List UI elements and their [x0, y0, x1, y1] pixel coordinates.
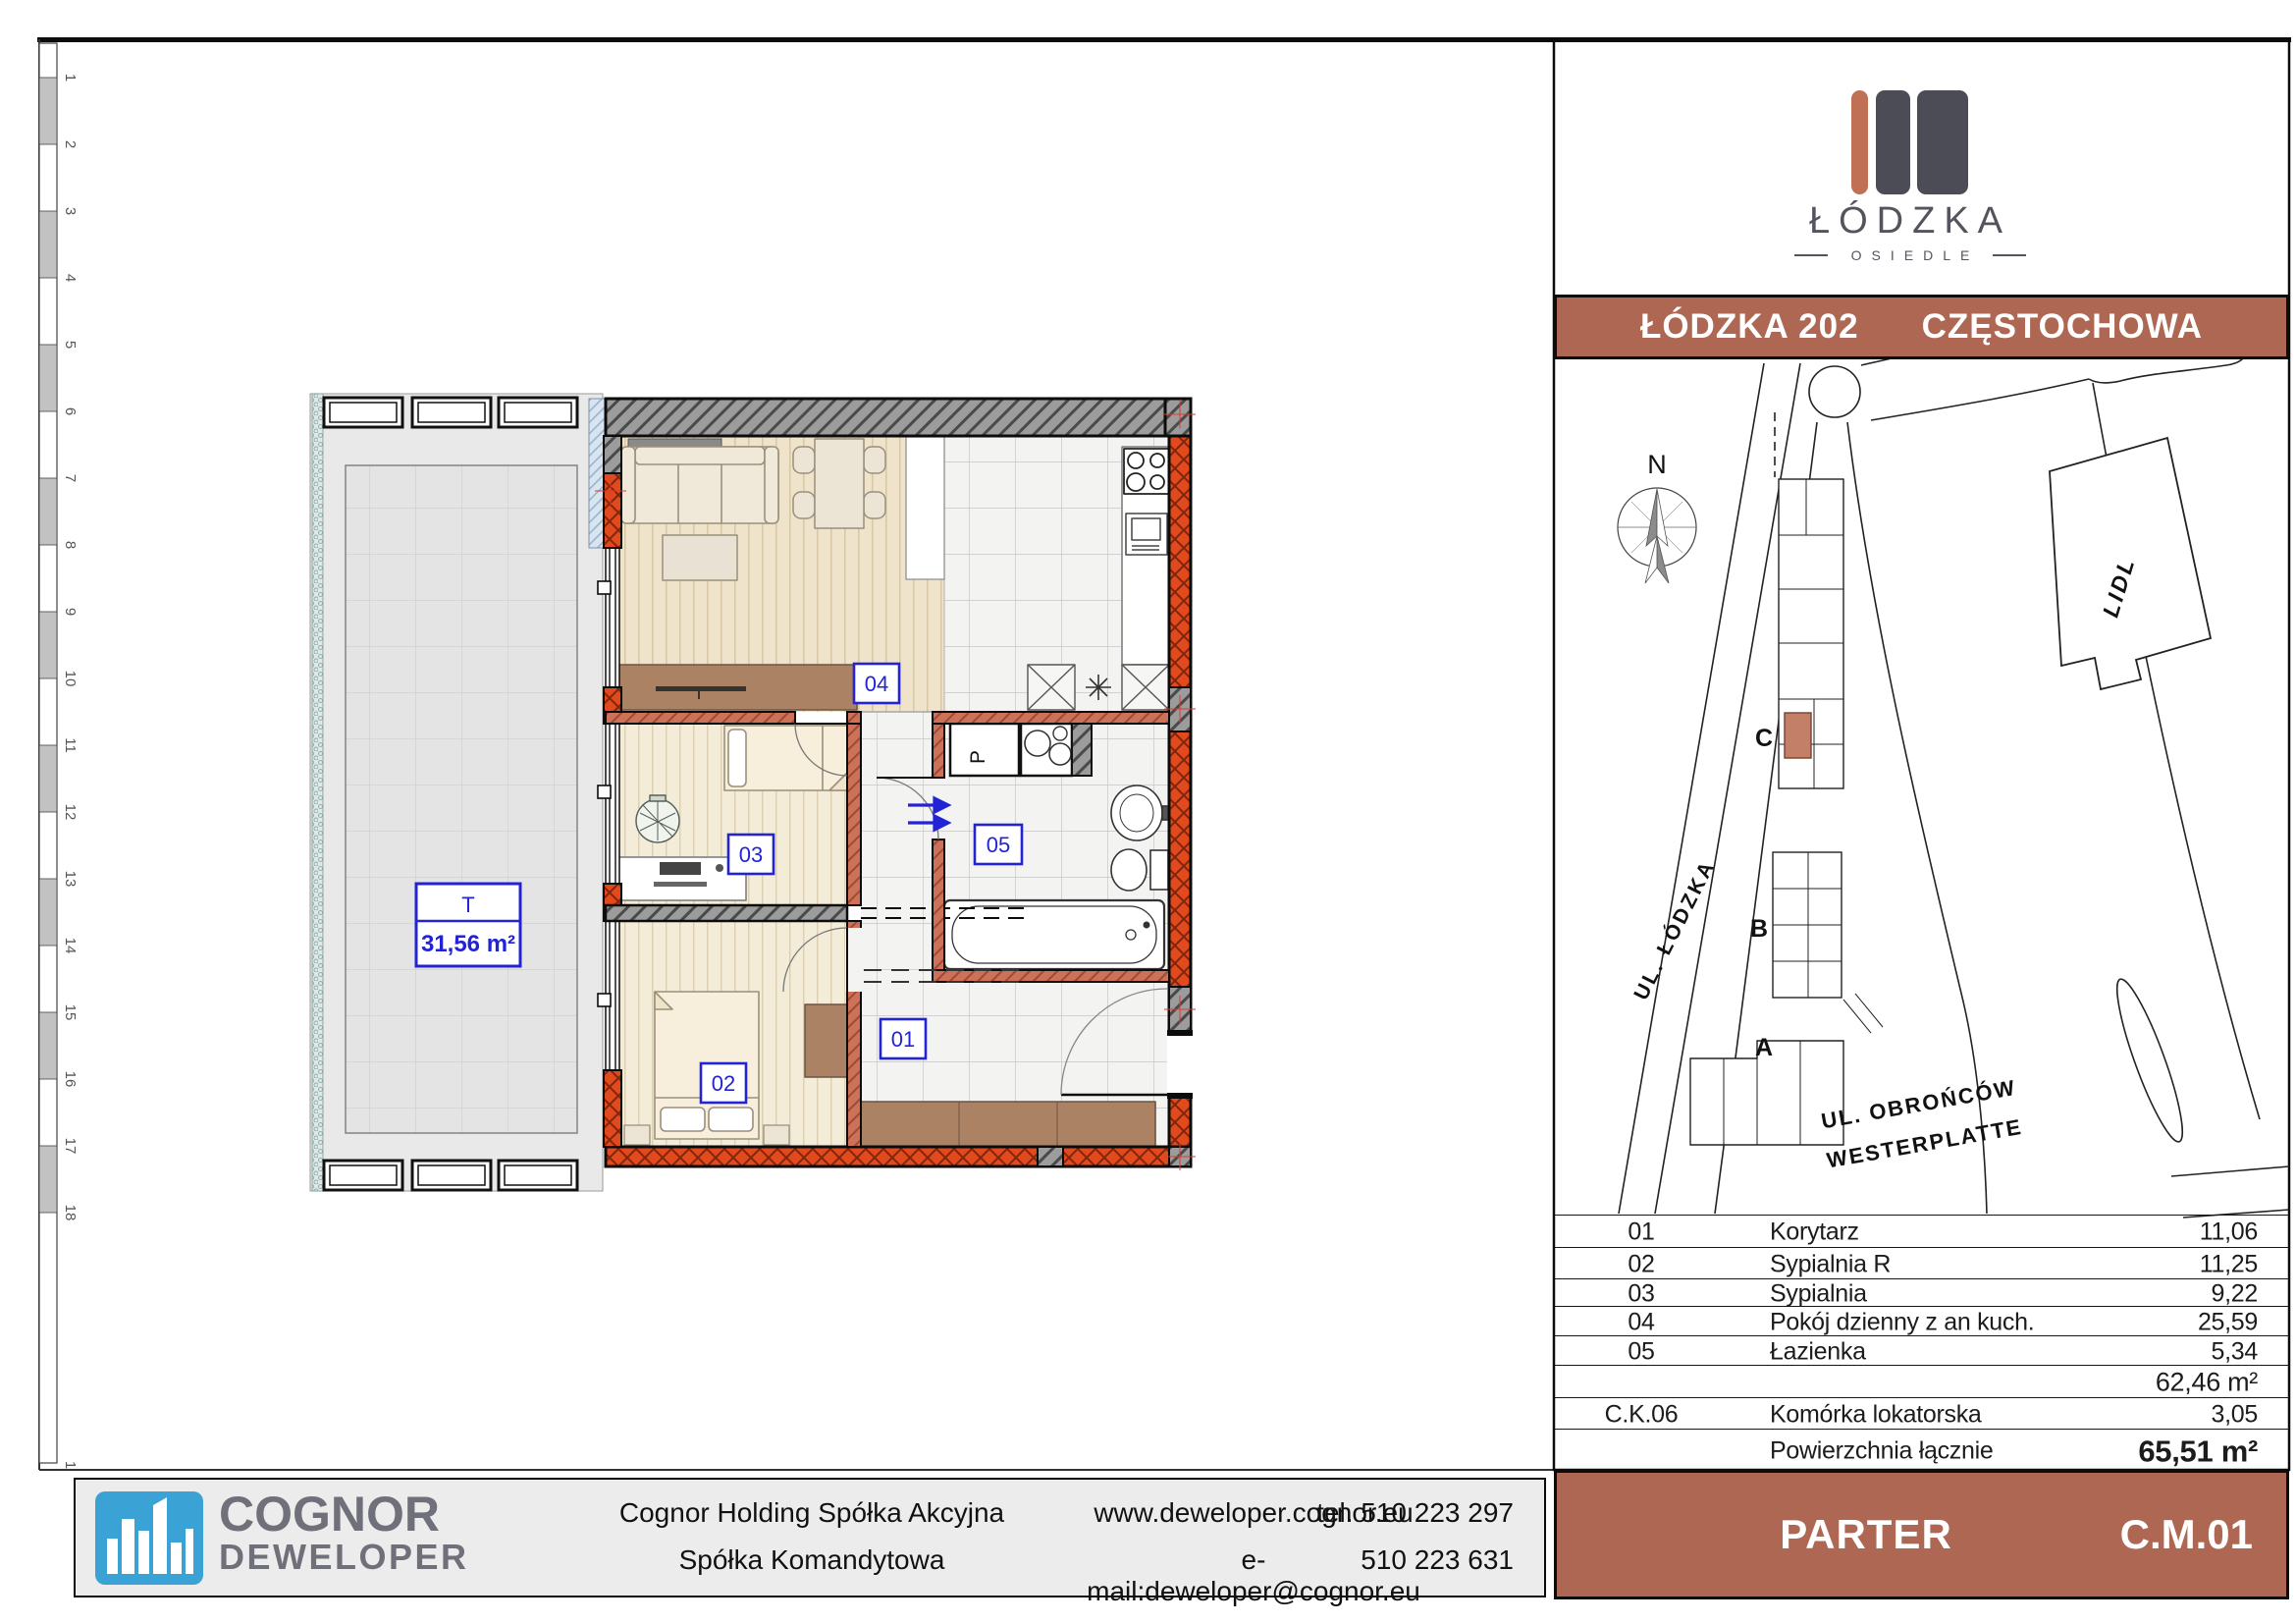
ruler-label: 8 — [62, 541, 79, 549]
logo-bar-terracotta — [1851, 90, 1868, 194]
svg-text:01: 01 — [891, 1027, 915, 1052]
row-value: 11,25 — [2200, 1250, 2258, 1278]
wall-pier — [604, 473, 621, 548]
row-name: Sypialnia R — [1770, 1250, 1891, 1278]
window-mullion — [598, 994, 611, 1006]
row-no: C.K.06 — [1554, 1400, 1729, 1429]
company-line-2: Spółka Komandytowa — [586, 1544, 1038, 1576]
ruler-label: 12 — [62, 804, 79, 821]
table-row: 02 Sypialnia R 11,25 — [1554, 1247, 2289, 1278]
floor-unit-bar: PARTER C.M.01 — [1554, 1470, 2289, 1599]
logo-bar-dark-1 — [1876, 90, 1910, 194]
terrace-code: T — [461, 893, 474, 917]
cognor-skyline-icon — [95, 1491, 203, 1585]
hedge-strip — [312, 394, 323, 1191]
logo-bar-dark-2 — [1917, 90, 1968, 194]
row-value: 5,34 — [2212, 1337, 2258, 1366]
bedside-stool — [764, 1125, 789, 1145]
investment-city: CZĘSTOCHOWA — [1922, 307, 2203, 347]
table-row: C.K.06 Komórka lokatorska 3,05 — [1554, 1397, 2289, 1429]
investment-name: ŁÓDZKA 202 — [1640, 307, 1859, 347]
terrace-tiles — [346, 465, 577, 1133]
row-name: Sypialnia — [1770, 1279, 1867, 1308]
bathtub-icon — [944, 900, 1164, 969]
building-label-b: B — [1750, 915, 1768, 943]
cognor-logo — [95, 1491, 203, 1585]
row-no: 04 — [1554, 1308, 1729, 1336]
wall-bottom — [606, 1147, 1191, 1166]
utility-niche: P — [950, 724, 1092, 776]
row-value: 11,06 — [2200, 1218, 2258, 1247]
floor-label: PARTER — [1724, 1511, 2008, 1558]
ruler-label: 16 — [62, 1071, 79, 1088]
room-label-01: 01 — [881, 1019, 926, 1058]
ruler-label: 9 — [62, 608, 79, 616]
map-unit-highlight — [1785, 713, 1811, 758]
building-label-c: C — [1755, 725, 1773, 752]
wall-bath-corridor — [933, 839, 944, 970]
ruler-label: 6 — [62, 407, 79, 415]
room-label-02: 02 — [701, 1063, 746, 1103]
room-label-04: 04 — [854, 664, 899, 703]
tv-icon — [656, 686, 746, 691]
wall-structural-mid — [606, 905, 847, 921]
ruler-label: 18 — [62, 1205, 79, 1221]
terrace-area: 31,56 m² — [421, 931, 515, 957]
wall-bath-bottom — [933, 970, 1169, 982]
wall-top — [606, 399, 1169, 436]
row-name: Korytarz — [1770, 1218, 1859, 1247]
investment-header: ŁÓDZKA 202 CZĘSTOCHOWA — [1554, 295, 2289, 359]
table-row: 03 Sypialnia 9,22 — [1554, 1278, 2289, 1306]
wall-kitchen-bath — [933, 712, 1169, 724]
deweloper-wordmark: DEWELOPER — [219, 1537, 469, 1578]
ruler-bottom-label: 1 — [62, 1461, 79, 1469]
table-row-subtotal: 62,46 m² — [1554, 1365, 2289, 1397]
street-label-lodzka: UL. ŁÓDZKA — [1629, 855, 1720, 1003]
window-mullion — [598, 785, 611, 798]
keyboard-icon — [660, 862, 701, 875]
ruler-label: 5 — [62, 341, 79, 349]
vertical-ruler: 1 2 3 4 5 6 7 8 9 10 11 12 13 14 15 16 1… — [39, 43, 79, 1469]
table-row: 04 Pokój dzienny z an kuch. 25,59 — [1554, 1306, 2289, 1335]
ruler-label: 17 — [62, 1138, 79, 1155]
svg-text:03: 03 — [739, 842, 763, 867]
ruler-label: 3 — [62, 207, 79, 215]
svg-text:02: 02 — [712, 1071, 735, 1096]
row-no: 03 — [1554, 1279, 1729, 1308]
map-lidl-building: LIDL — [2050, 438, 2211, 689]
ruler-label: 1 — [62, 74, 79, 81]
row-value: 25,59 — [2198, 1308, 2258, 1336]
kitchen-column — [906, 437, 944, 579]
sideboard — [615, 665, 857, 710]
row-value: 9,22 — [2212, 1279, 2258, 1308]
ruler-label: 10 — [62, 671, 79, 687]
room-label-05: 05 — [975, 825, 1022, 864]
wardrobe-bedroom2 — [805, 1004, 847, 1077]
room-label-03: 03 — [728, 835, 774, 874]
table-row: 05 Łazienka 5,34 — [1554, 1335, 2289, 1365]
company-line-1: Cognor Holding Spółka Akcyjna — [586, 1497, 1038, 1529]
stove-icon — [1124, 449, 1169, 494]
table-row-total: Powierzchnia łącznie 65,51 m² — [1554, 1429, 2289, 1470]
svg-text:04: 04 — [865, 672, 888, 696]
building-label-a: A — [1755, 1034, 1773, 1061]
monitor-icon — [654, 882, 707, 887]
row-name: Powierzchnia łącznie — [1770, 1436, 1993, 1465]
terrace-planters-top — [324, 398, 577, 427]
north-compass-icon: N — [1618, 450, 1696, 583]
single-bed — [724, 726, 847, 790]
corridor-wardrobe — [861, 1102, 1155, 1147]
row-value: 62,46 m² — [2156, 1368, 2258, 1398]
logo-dash-right — [1993, 254, 2026, 256]
ruler-label: 13 — [62, 871, 79, 888]
table-row: 01 Korytarz 11,06 — [1554, 1215, 2289, 1247]
row-no: 02 — [1554, 1250, 1729, 1278]
row-value: 65,51 m² — [2138, 1434, 2258, 1469]
site-map: LIDL N C B A UL. ŁÓDZKA — [1618, 326, 2289, 1218]
washer-label: P — [967, 750, 989, 764]
row-name: Pokój dzienny z an kuch. — [1770, 1308, 2034, 1336]
toilet-icon — [1111, 849, 1168, 891]
window-mullion — [598, 581, 611, 594]
developer-footer: COGNOR DEWELOPER Cognor Holding Spółka A… — [74, 1478, 1546, 1597]
terrace: T 31,56 m² — [310, 394, 603, 1191]
wall-living-bedroom3 — [606, 712, 795, 724]
coffee-table — [663, 535, 737, 580]
phone-1: tel. 510 223 297 — [1308, 1497, 1514, 1529]
ruler-label: 11 — [62, 737, 79, 753]
map-buildings — [1690, 479, 1883, 1145]
phone-2: 510 223 631 — [1308, 1544, 1514, 1576]
row-name: Łazienka — [1770, 1337, 1866, 1366]
svg-text:05: 05 — [987, 833, 1010, 857]
estate-logo-sub: OSIEDLE — [1763, 247, 2057, 263]
terrace-planters-bottom — [324, 1161, 577, 1190]
north-label: N — [1647, 450, 1667, 479]
unit-code: C.M.01 — [2120, 1511, 2253, 1558]
ruler-label: 15 — [62, 1004, 79, 1021]
terrace-label: T 31,56 m² — [416, 884, 520, 966]
ruler-label: 2 — [62, 140, 79, 148]
row-no: 01 — [1554, 1218, 1729, 1247]
ruler-label: 14 — [62, 938, 79, 954]
row-no: 05 — [1554, 1337, 1729, 1366]
estate-logo-sub-label: OSIEDLE — [1842, 247, 1980, 263]
row-value: 3,05 — [2212, 1400, 2258, 1429]
estate-logo-name: ŁÓDZKA — [1763, 200, 2057, 243]
bedside-stool — [624, 1125, 650, 1145]
wall-pier — [604, 1070, 621, 1147]
ruler-label: 4 — [62, 274, 79, 282]
cognor-wordmark: COGNOR — [219, 1486, 440, 1543]
wall-bedroom3-corridor — [847, 724, 861, 905]
desk — [616, 857, 746, 900]
ruler-label: 7 — [62, 474, 79, 482]
logo-dash-left — [1794, 254, 1828, 256]
row-name: Komórka lokatorska — [1770, 1400, 1982, 1429]
sofa — [621, 447, 778, 523]
